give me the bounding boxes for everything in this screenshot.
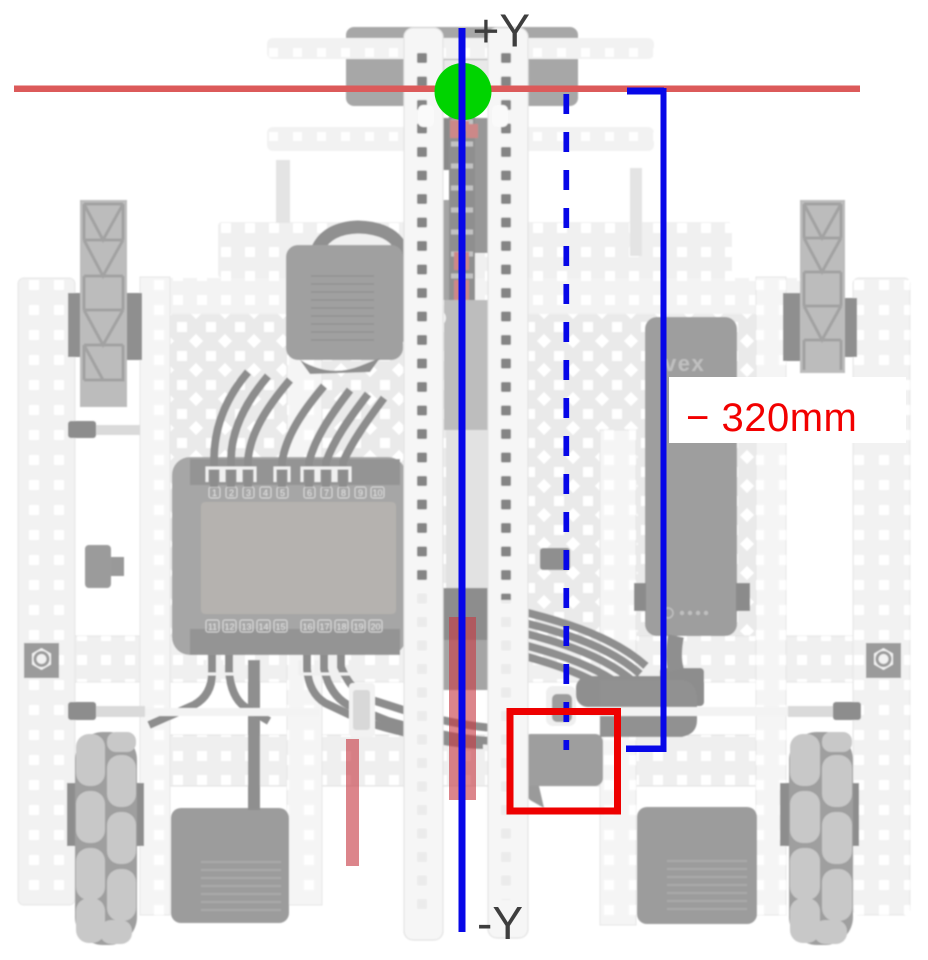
svg-text:7: 7: [324, 488, 329, 498]
svg-text:10: 10: [372, 488, 382, 498]
svg-text:8: 8: [341, 488, 346, 498]
svg-text:17: 17: [319, 622, 329, 632]
svg-text:11: 11: [208, 622, 217, 632]
svg-text:12: 12: [224, 622, 234, 632]
svg-text:15: 15: [275, 622, 285, 632]
svg-text:1: 1: [212, 488, 217, 498]
svg-text:14: 14: [258, 622, 268, 632]
svg-text:9: 9: [358, 488, 363, 498]
svg-text:19: 19: [353, 622, 363, 632]
svg-text:13: 13: [241, 622, 251, 632]
svg-text:-Y: -Y: [477, 897, 523, 949]
svg-text:3: 3: [246, 488, 251, 498]
svg-text:6: 6: [307, 488, 312, 498]
svg-text:vex: vex: [664, 351, 705, 376]
svg-text:16: 16: [302, 622, 312, 632]
svg-text:5: 5: [280, 488, 285, 498]
svg-text:18: 18: [336, 622, 346, 632]
svg-text:20: 20: [370, 622, 380, 632]
svg-text:− 320mm: − 320mm: [686, 396, 857, 440]
svg-text:+Y: +Y: [473, 5, 531, 57]
svg-text:4: 4: [263, 488, 268, 498]
svg-text:2: 2: [229, 488, 234, 498]
